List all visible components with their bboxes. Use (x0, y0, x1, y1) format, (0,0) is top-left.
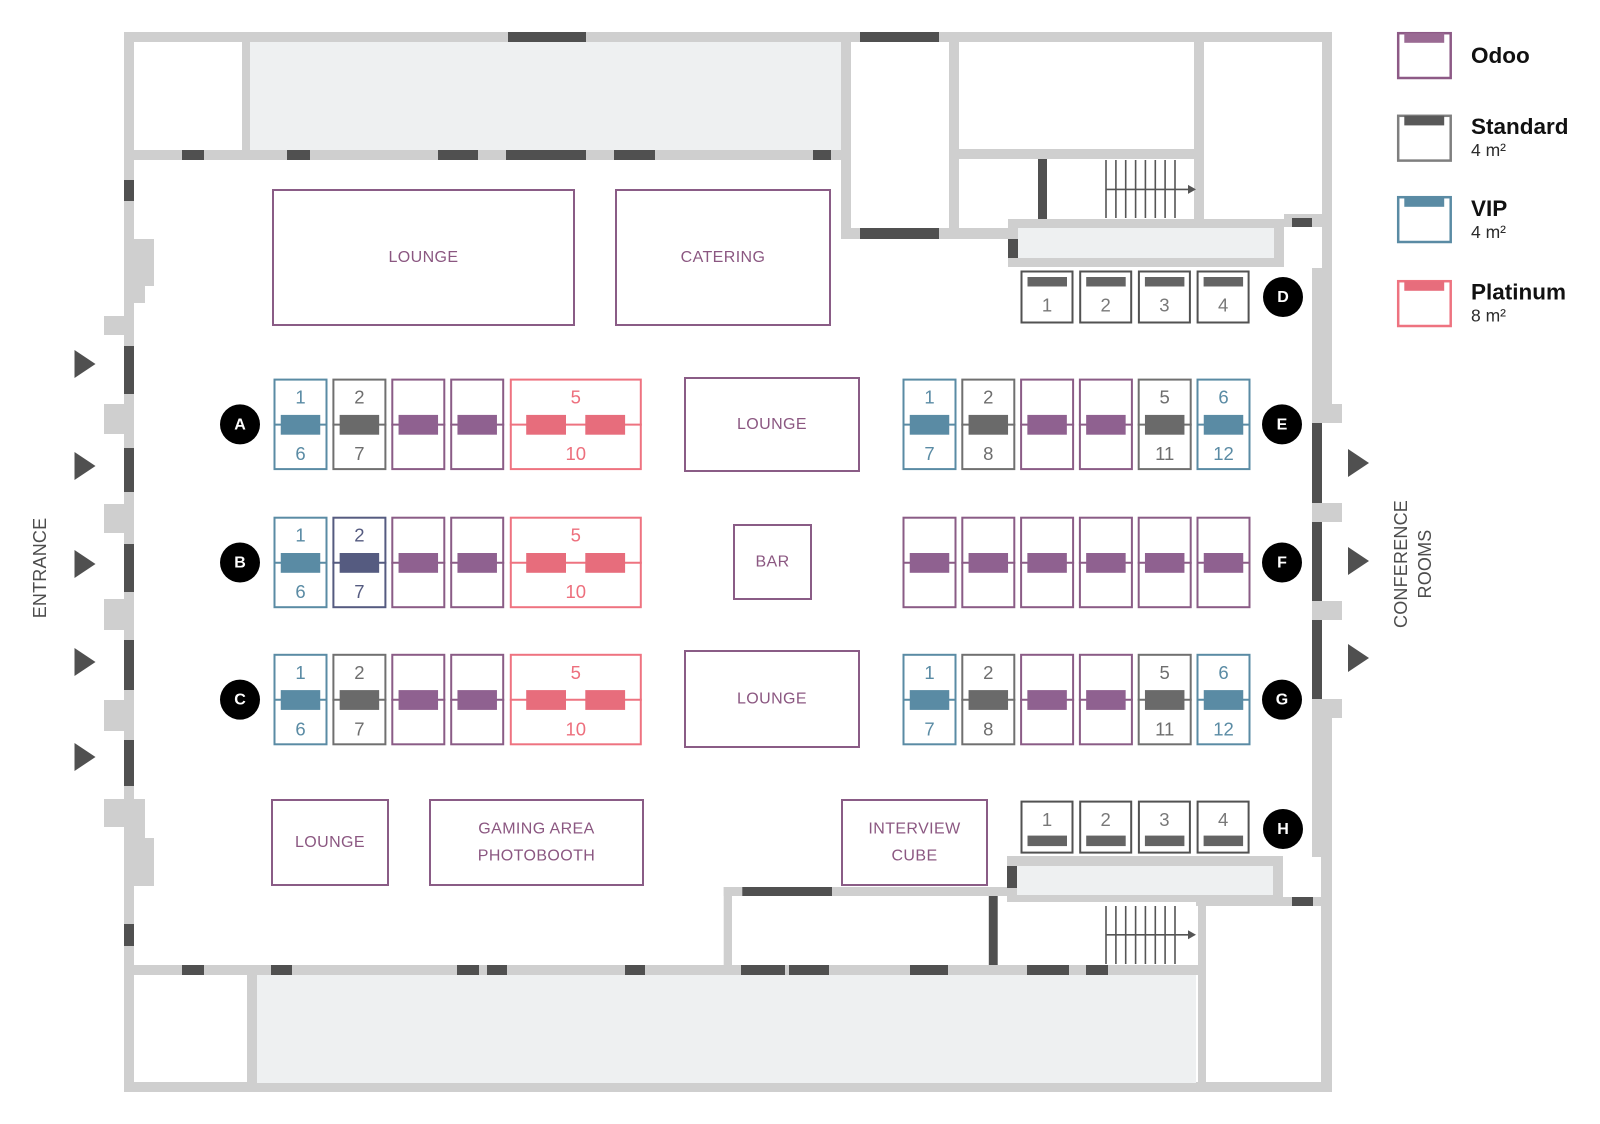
svg-text:1: 1 (1042, 809, 1052, 830)
svg-text:Odoo: Odoo (1471, 43, 1530, 68)
svg-text:8: 8 (983, 718, 993, 739)
svg-text:3: 3 (1159, 295, 1169, 316)
svg-text:CUBE: CUBE (891, 848, 937, 865)
svg-text:4: 4 (1218, 809, 1228, 830)
svg-text:7: 7 (354, 581, 364, 602)
svg-text:GAMING AREA: GAMING AREA (478, 821, 594, 838)
svg-text:1: 1 (295, 525, 305, 546)
svg-text:CONFERENCE: CONFERENCE (1391, 500, 1411, 628)
svg-text:2: 2 (983, 387, 993, 408)
svg-text:BAR: BAR (755, 554, 789, 571)
svg-text:5: 5 (1160, 387, 1170, 408)
svg-text:2: 2 (354, 525, 364, 546)
svg-text:2: 2 (983, 662, 993, 683)
svg-text:2: 2 (354, 662, 364, 683)
svg-text:C: C (234, 692, 246, 709)
svg-text:LOUNGE: LOUNGE (737, 416, 807, 433)
svg-text:B: B (234, 555, 246, 572)
svg-text:12: 12 (1213, 443, 1234, 464)
svg-text:2: 2 (1101, 295, 1111, 316)
svg-text:Platinum: Platinum (1471, 280, 1566, 305)
svg-text:7: 7 (354, 443, 364, 464)
svg-text:LOUNGE: LOUNGE (389, 249, 459, 266)
svg-text:LOUNGE: LOUNGE (295, 834, 365, 851)
svg-text:2: 2 (1101, 809, 1111, 830)
svg-text:4: 4 (1218, 295, 1228, 316)
svg-text:G: G (1276, 692, 1288, 709)
svg-text:10: 10 (566, 443, 587, 464)
svg-text:1: 1 (1042, 295, 1052, 316)
svg-text:11: 11 (1155, 718, 1174, 739)
svg-text:6: 6 (1218, 662, 1228, 683)
svg-text:8: 8 (983, 443, 993, 464)
svg-text:5: 5 (571, 525, 581, 546)
svg-text:6: 6 (295, 443, 305, 464)
svg-text:5: 5 (571, 387, 581, 408)
svg-text:7: 7 (354, 718, 364, 739)
svg-text:10: 10 (566, 718, 587, 739)
svg-text:11: 11 (1155, 443, 1174, 464)
svg-text:10: 10 (566, 581, 587, 602)
svg-text:7: 7 (924, 718, 934, 739)
svg-text:LOUNGE: LOUNGE (737, 691, 807, 708)
svg-text:PHOTOBOOTH: PHOTOBOOTH (478, 848, 596, 865)
svg-text:6: 6 (1218, 387, 1228, 408)
svg-text:A: A (234, 416, 246, 433)
svg-text:5: 5 (1160, 662, 1170, 683)
svg-text:1: 1 (924, 662, 934, 683)
svg-text:4 m²: 4 m² (1471, 222, 1506, 242)
svg-text:2: 2 (354, 387, 364, 408)
svg-text:INTERVIEW: INTERVIEW (868, 821, 961, 838)
svg-text:Standard: Standard (1471, 114, 1569, 139)
svg-text:8 m²: 8 m² (1471, 306, 1506, 326)
svg-text:1: 1 (924, 387, 934, 408)
svg-text:3: 3 (1159, 809, 1169, 830)
svg-text:H: H (1277, 821, 1289, 838)
svg-text:ENTRANCE: ENTRANCE (30, 518, 50, 619)
svg-text:6: 6 (295, 581, 305, 602)
svg-text:7: 7 (924, 443, 934, 464)
svg-text:CATERING: CATERING (681, 249, 766, 266)
svg-text:1: 1 (295, 662, 305, 683)
svg-text:F: F (1277, 555, 1287, 572)
svg-text:1: 1 (295, 387, 305, 408)
svg-text:D: D (1277, 289, 1289, 306)
svg-text:ROOMS: ROOMS (1415, 529, 1435, 598)
svg-text:VIP: VIP (1471, 196, 1507, 221)
svg-text:12: 12 (1213, 718, 1234, 739)
svg-text:6: 6 (295, 718, 305, 739)
svg-text:E: E (1277, 416, 1288, 433)
svg-text:5: 5 (571, 662, 581, 683)
svg-text:4 m²: 4 m² (1471, 140, 1506, 160)
